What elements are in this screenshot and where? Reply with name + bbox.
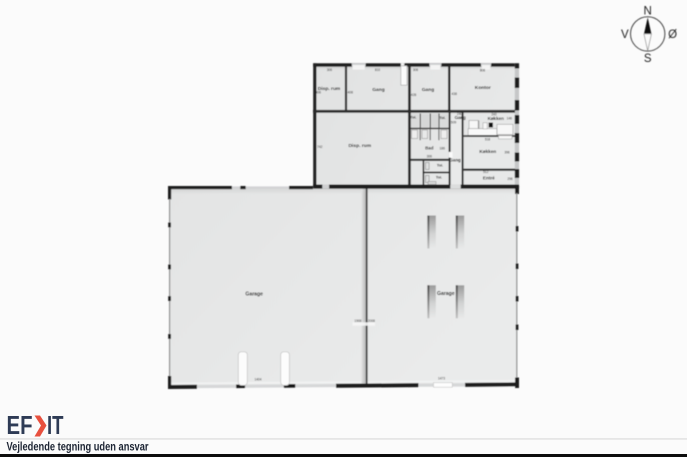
svg-text:806: 806 [480,68,486,72]
svg-text:IT: IT [47,410,64,440]
svg-text:N: N [644,5,652,17]
svg-text:Disp. rum: Disp. rum [318,86,341,92]
svg-text:Toi.: Toi. [410,116,416,120]
svg-text:Toi.: Toi. [439,116,445,120]
svg-text:518: 518 [485,137,491,141]
svg-text:Entré: Entré [483,176,495,181]
svg-text:Vejledende tegning uden ansvar: Vejledende tegning uden ansvar [7,442,149,454]
svg-text:Køkken: Køkken [488,116,505,121]
svg-text:306: 306 [327,68,333,72]
svg-text:509: 509 [451,121,457,125]
svg-text:Garage: Garage [437,291,455,297]
svg-text:EF: EF [7,410,33,440]
svg-text:810: 810 [375,68,381,72]
svg-text:1404: 1404 [254,378,261,382]
svg-text:186: 186 [440,146,446,150]
svg-text:Gang: Gang [422,87,435,93]
svg-text:Køkken: Køkken [479,149,496,154]
svg-text:396: 396 [504,151,510,155]
svg-text:Gang: Gang [372,87,385,93]
svg-text:146: 146 [507,116,513,120]
svg-text:240: 240 [457,112,463,116]
svg-text:Garage: Garage [245,292,263,298]
svg-text:V: V [621,29,629,41]
svg-text:438: 438 [452,92,458,96]
svg-text:Disp. rum: Disp. rum [349,143,372,149]
svg-text:1908: 1908 [354,319,361,323]
svg-text:408: 408 [348,91,354,95]
svg-text:Bad: Bad [425,145,434,150]
svg-text:1473: 1473 [438,377,445,381]
svg-text:2008: 2008 [368,319,375,323]
svg-text:306: 306 [427,155,433,159]
svg-text:512: 512 [483,170,489,174]
svg-text:296: 296 [507,177,513,181]
svg-text:S: S [644,53,652,65]
svg-text:Kontor: Kontor [475,85,491,91]
svg-text:Gang: Gang [449,157,461,162]
svg-text:Toi.: Toi. [436,176,442,180]
svg-text:306: 306 [413,68,419,72]
svg-text:428: 428 [411,93,417,97]
svg-text:Ø: Ø [668,29,677,41]
svg-text:742: 742 [317,145,323,149]
svg-text:240: 240 [491,113,497,117]
svg-text:406: 406 [316,91,322,95]
svg-text:Toi.: Toi. [437,163,443,167]
